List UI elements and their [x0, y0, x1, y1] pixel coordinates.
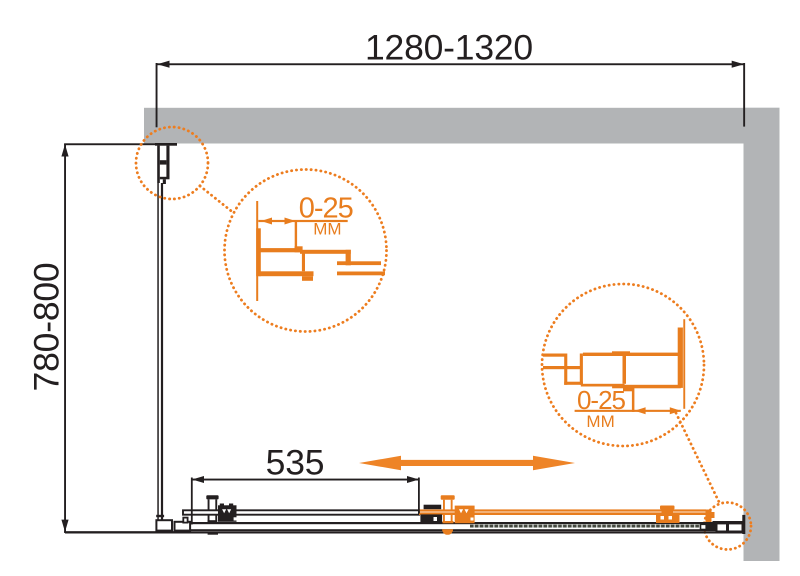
svg-text:ММ: ММ	[313, 220, 341, 239]
svg-text:535: 535	[266, 442, 325, 482]
svg-text:ММ: ММ	[586, 412, 614, 431]
svg-text:0-25: 0-25	[577, 385, 626, 415]
svg-text:780-800: 780-800	[27, 263, 67, 392]
svg-text:1280-1320: 1280-1320	[365, 27, 533, 67]
